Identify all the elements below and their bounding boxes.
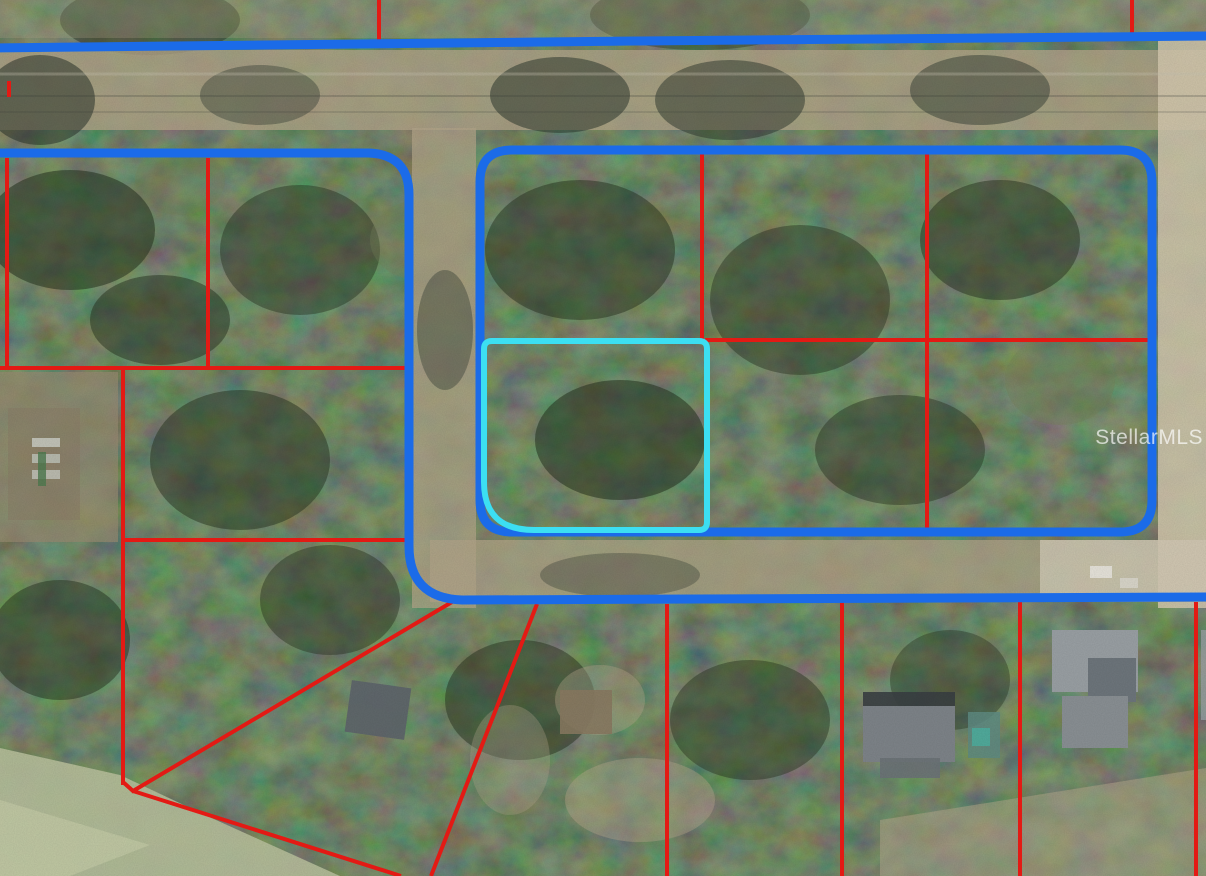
- stellar-mls-watermark: StellarMLS: [1095, 426, 1203, 449]
- image-grain: [0, 0, 1206, 876]
- map-canvas[interactable]: StellarMLS: [0, 0, 1206, 876]
- aerial-parcel-map: StellarMLS: [0, 0, 1206, 876]
